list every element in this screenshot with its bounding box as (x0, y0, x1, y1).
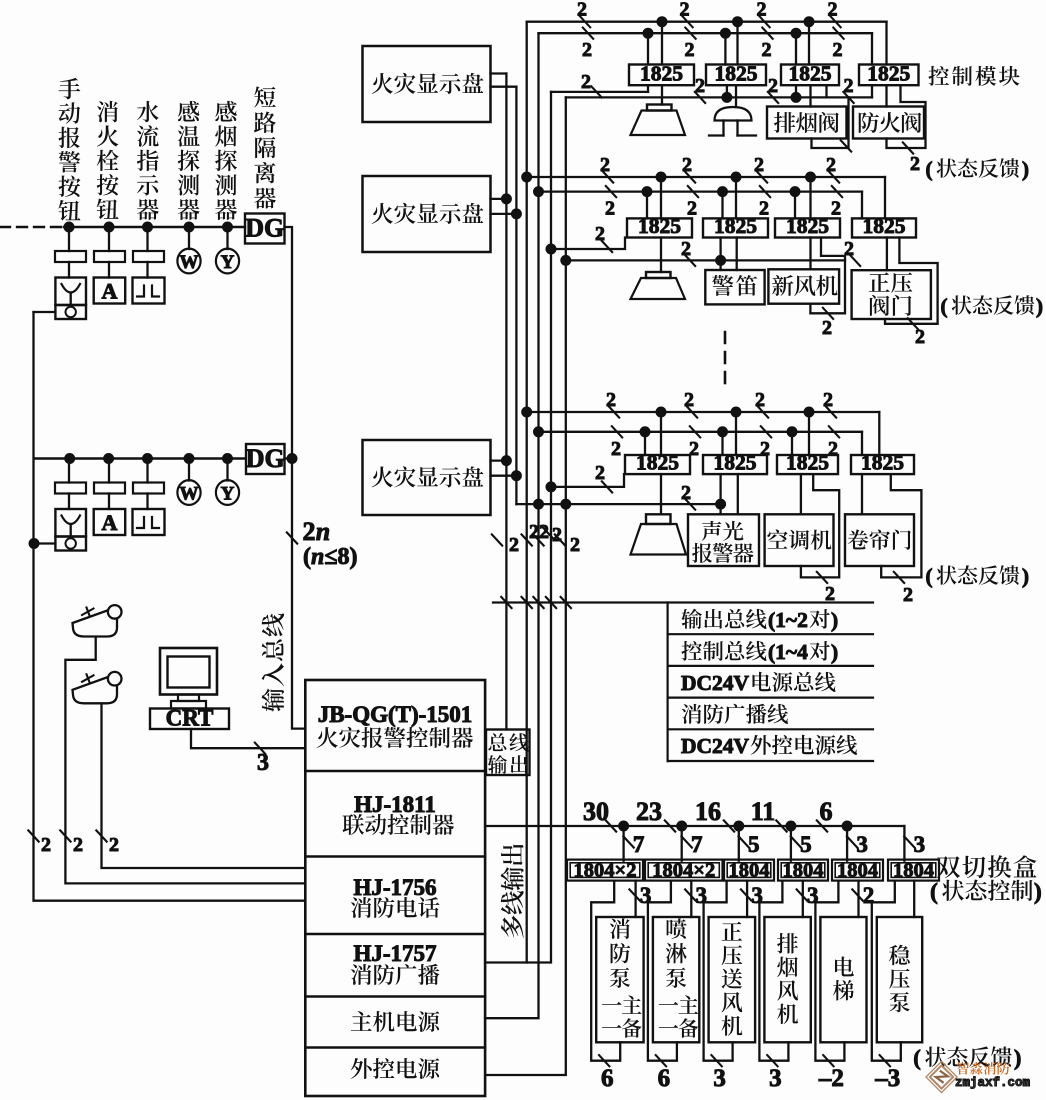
svg-text:2: 2 (828, 0, 838, 21)
svg-text:2: 2 (606, 389, 616, 411)
svg-text:3: 3 (856, 832, 868, 857)
svg-text:(: ( (941, 294, 948, 318)
svg-text:HJ-1756: HJ-1756 (353, 875, 436, 900)
svg-text:2: 2 (844, 75, 854, 97)
svg-text:A: A (102, 510, 118, 535)
svg-text:(: ( (926, 564, 933, 588)
svg-text:1825: 1825 (638, 214, 681, 238)
svg-text:2: 2 (915, 326, 925, 348)
svg-text:1804×2: 1804×2 (652, 860, 715, 882)
svg-text:2: 2 (687, 198, 697, 220)
svg-text:2: 2 (73, 834, 83, 856)
svg-text:1825: 1825 (861, 451, 904, 475)
svg-text:3: 3 (769, 1065, 782, 1092)
svg-text:2: 2 (823, 389, 833, 411)
svg-text:2: 2 (825, 583, 835, 605)
svg-text:2: 2 (41, 834, 51, 856)
svg-text:1804×2: 1804×2 (574, 860, 637, 882)
svg-text:2: 2 (903, 584, 913, 606)
svg-text:Y: Y (221, 484, 235, 505)
svg-text:): ) (1022, 564, 1029, 588)
svg-text:CRT: CRT (166, 706, 214, 731)
svg-text:2: 2 (826, 154, 836, 176)
svg-text:(1~4: (1~4 (768, 640, 808, 664)
svg-text:2: 2 (581, 71, 591, 93)
svg-text:2: 2 (605, 198, 615, 220)
svg-text:16: 16 (695, 797, 721, 826)
svg-text:2: 2 (303, 517, 316, 546)
svg-text:(: ( (926, 157, 933, 181)
svg-text:1804: 1804 (837, 860, 878, 882)
svg-text:3: 3 (713, 1065, 726, 1092)
svg-text:zmjaxf.com: zmjaxf.com (955, 1076, 1031, 1090)
svg-text:(n≤8): (n≤8) (303, 544, 358, 570)
svg-text:): ) (831, 640, 838, 664)
svg-text:2: 2 (762, 39, 772, 61)
svg-text:2: 2 (600, 154, 610, 176)
svg-text:): ) (1034, 879, 1042, 904)
svg-text:1825: 1825 (786, 451, 829, 475)
svg-text:Y: Y (221, 252, 235, 273)
svg-text:2: 2 (759, 198, 769, 220)
svg-text:W: W (180, 252, 199, 273)
svg-text:2: 2 (828, 438, 838, 460)
svg-text:3: 3 (914, 832, 926, 857)
svg-text:3: 3 (640, 883, 652, 908)
svg-text:W: W (180, 484, 199, 505)
svg-text:2: 2 (910, 153, 920, 175)
svg-text:2: 2 (552, 524, 562, 546)
svg-text:2: 2 (595, 223, 605, 245)
svg-text:23: 23 (636, 797, 662, 826)
svg-text:HJ-1757: HJ-1757 (353, 941, 436, 966)
svg-text:3: 3 (257, 750, 269, 776)
svg-text:1804: 1804 (729, 860, 770, 882)
svg-text:DG: DG (246, 444, 285, 473)
svg-text:1825: 1825 (863, 214, 906, 238)
svg-text:JB-QG(T)-1501: JB-QG(T)-1501 (318, 702, 473, 727)
svg-text:3: 3 (751, 883, 763, 908)
svg-text:–3: –3 (874, 1065, 900, 1092)
svg-text:2: 2 (577, 0, 587, 21)
svg-text:HJ-1811: HJ-1811 (354, 792, 436, 817)
svg-text:2: 2 (109, 834, 119, 856)
svg-text:2: 2 (833, 39, 843, 61)
svg-text:2: 2 (685, 39, 695, 61)
svg-text:5: 5 (800, 832, 812, 857)
svg-text:): ) (1036, 294, 1043, 318)
svg-text:3: 3 (696, 883, 708, 908)
svg-text:1825: 1825 (786, 214, 829, 238)
svg-text:2: 2 (822, 317, 832, 339)
svg-text:2: 2 (754, 154, 764, 176)
svg-text:6: 6 (820, 797, 833, 826)
svg-text:DG: DG (245, 214, 284, 243)
svg-text:6: 6 (601, 1065, 614, 1092)
svg-text:2: 2 (680, 0, 690, 21)
svg-text:(1~2: (1~2 (768, 608, 808, 632)
svg-text:1825: 1825 (867, 62, 910, 86)
svg-text:5: 5 (748, 832, 760, 857)
svg-text:1804: 1804 (893, 860, 934, 882)
svg-text:2: 2 (595, 462, 605, 484)
svg-text:(: ( (913, 1045, 920, 1070)
svg-text:(: ( (930, 879, 938, 904)
svg-text:2: 2 (582, 39, 592, 61)
svg-text:): ) (831, 608, 838, 632)
svg-text:1804: 1804 (783, 860, 824, 882)
svg-text:1825: 1825 (714, 451, 757, 475)
svg-text:2: 2 (757, 0, 767, 21)
svg-text:DC24V: DC24V (681, 671, 750, 695)
svg-text:11: 11 (751, 797, 776, 826)
svg-text:2: 2 (768, 75, 778, 97)
svg-text:2: 2 (760, 438, 770, 460)
svg-text:2: 2 (681, 482, 691, 504)
svg-text:6: 6 (658, 1065, 671, 1092)
svg-text:3: 3 (807, 883, 819, 908)
svg-text:2: 2 (695, 75, 705, 97)
svg-text:1825: 1825 (640, 62, 683, 86)
svg-text:2: 2 (570, 534, 580, 556)
svg-text:DC24V: DC24V (681, 734, 750, 758)
svg-text:7: 7 (691, 832, 703, 857)
svg-text:): ) (1014, 1045, 1021, 1070)
svg-text:1825: 1825 (789, 62, 832, 86)
svg-text:–2: –2 (818, 1065, 844, 1092)
svg-text:2: 2 (682, 154, 692, 176)
svg-text:1825: 1825 (714, 214, 757, 238)
svg-text:2: 2 (755, 389, 765, 411)
svg-text:1825: 1825 (715, 62, 758, 86)
svg-text:2: 2 (611, 438, 621, 460)
svg-text:): ) (1022, 157, 1029, 181)
svg-text:n: n (316, 517, 330, 546)
svg-text:7: 7 (633, 832, 645, 857)
svg-text:2: 2 (684, 389, 694, 411)
svg-text:2: 2 (681, 238, 691, 260)
svg-text:A: A (102, 279, 118, 304)
svg-text:1825: 1825 (636, 451, 679, 475)
svg-text:2: 2 (831, 198, 841, 220)
svg-text:2: 2 (509, 534, 519, 556)
svg-text:30: 30 (583, 797, 609, 826)
